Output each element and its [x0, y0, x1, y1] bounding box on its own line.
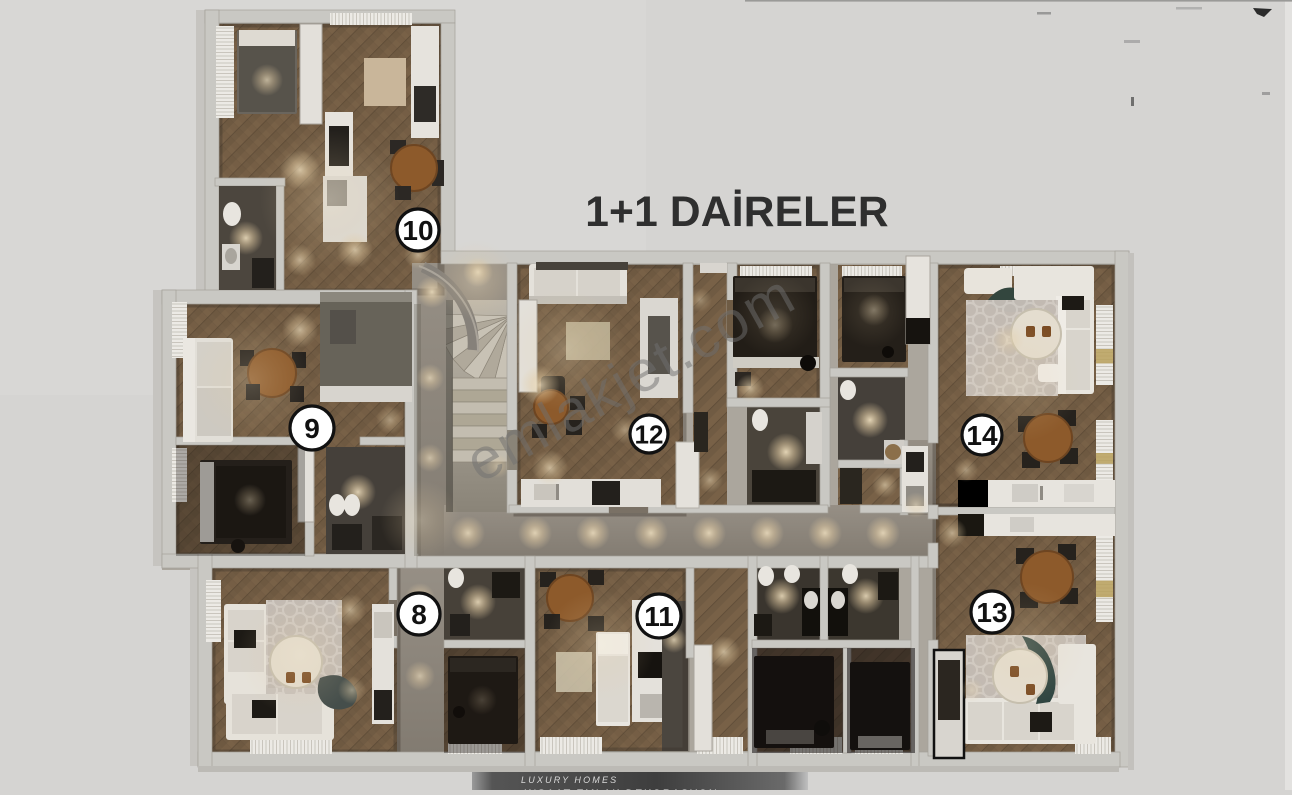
- svg-text:1+1 DAİRELER: 1+1 DAİRELER: [585, 189, 889, 236]
- svg-text:10: 10: [402, 215, 433, 246]
- svg-text:8: 8: [411, 599, 427, 630]
- svg-text:14: 14: [966, 420, 998, 451]
- svg-text:12: 12: [635, 419, 664, 449]
- svg-text:9: 9: [304, 413, 320, 444]
- svg-text:LUXURY HOMES: LUXURY HOMES: [521, 775, 618, 785]
- svg-text:13: 13: [976, 597, 1007, 628]
- svg-text:11: 11: [644, 601, 674, 632]
